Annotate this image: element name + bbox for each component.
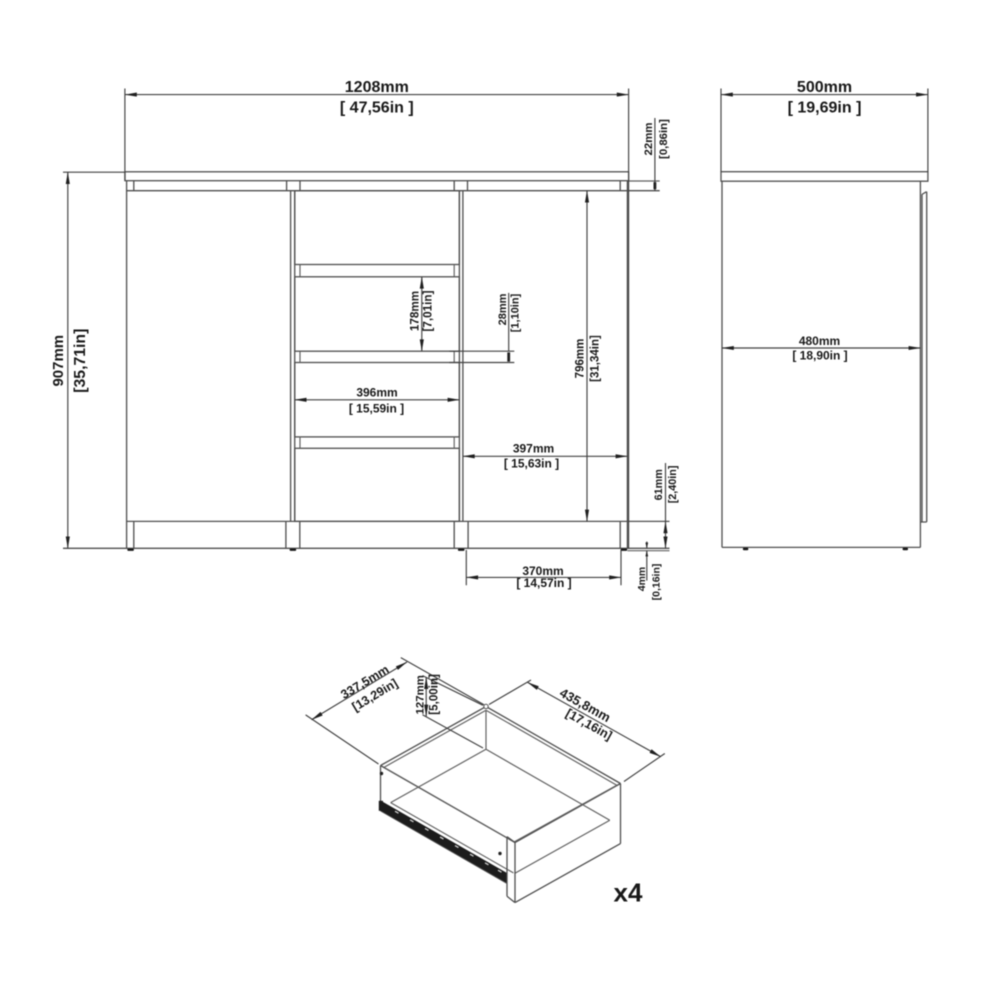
svg-text:[ 15,59in ]: [ 15,59in ] (349, 402, 404, 416)
svg-text:[ 18,90in ]: [ 18,90in ] (792, 349, 847, 363)
svg-text:907mm: 907mm (50, 335, 67, 387)
svg-text:[2,40in]: [2,40in] (667, 465, 679, 503)
svg-text:61mm: 61mm (653, 469, 665, 500)
svg-text:[31,34in]: [31,34in] (590, 335, 602, 382)
svg-text:500mm: 500mm (797, 79, 852, 96)
svg-text:x4: x4 (614, 878, 643, 908)
svg-text:[ 19,69in ]: [ 19,69in ] (788, 99, 862, 116)
svg-text:397mm: 397mm (513, 441, 554, 455)
svg-text:796mm: 796mm (575, 339, 587, 379)
svg-text:28mm: 28mm (497, 293, 509, 325)
svg-text:480mm: 480mm (799, 334, 840, 348)
svg-text:[35,71in]: [35,71in] (72, 329, 89, 393)
svg-text:127mm: 127mm (415, 675, 427, 714)
svg-text:22mm: 22mm (643, 123, 655, 156)
svg-text:[5,00in]: [5,00in] (428, 674, 441, 715)
svg-text:[7,01in]: [7,01in] (422, 290, 435, 331)
svg-text:178mm: 178mm (408, 291, 421, 331)
svg-text:4mm: 4mm (636, 567, 648, 592)
svg-text:[ 14,57in ]: [ 14,57in ] (516, 576, 571, 590)
svg-text:[0,86in]: [0,86in] (658, 119, 670, 159)
svg-text:[1,10in]: [1,10in] (509, 293, 521, 332)
svg-text:[0,16in]: [0,16in] (650, 564, 662, 601)
svg-text:396mm: 396mm (356, 386, 397, 400)
svg-text:1208mm: 1208mm (345, 79, 409, 96)
svg-text:[ 47,56in ]: [ 47,56in ] (340, 99, 414, 116)
svg-text:[ 15,63in ]: [ 15,63in ] (504, 457, 559, 471)
